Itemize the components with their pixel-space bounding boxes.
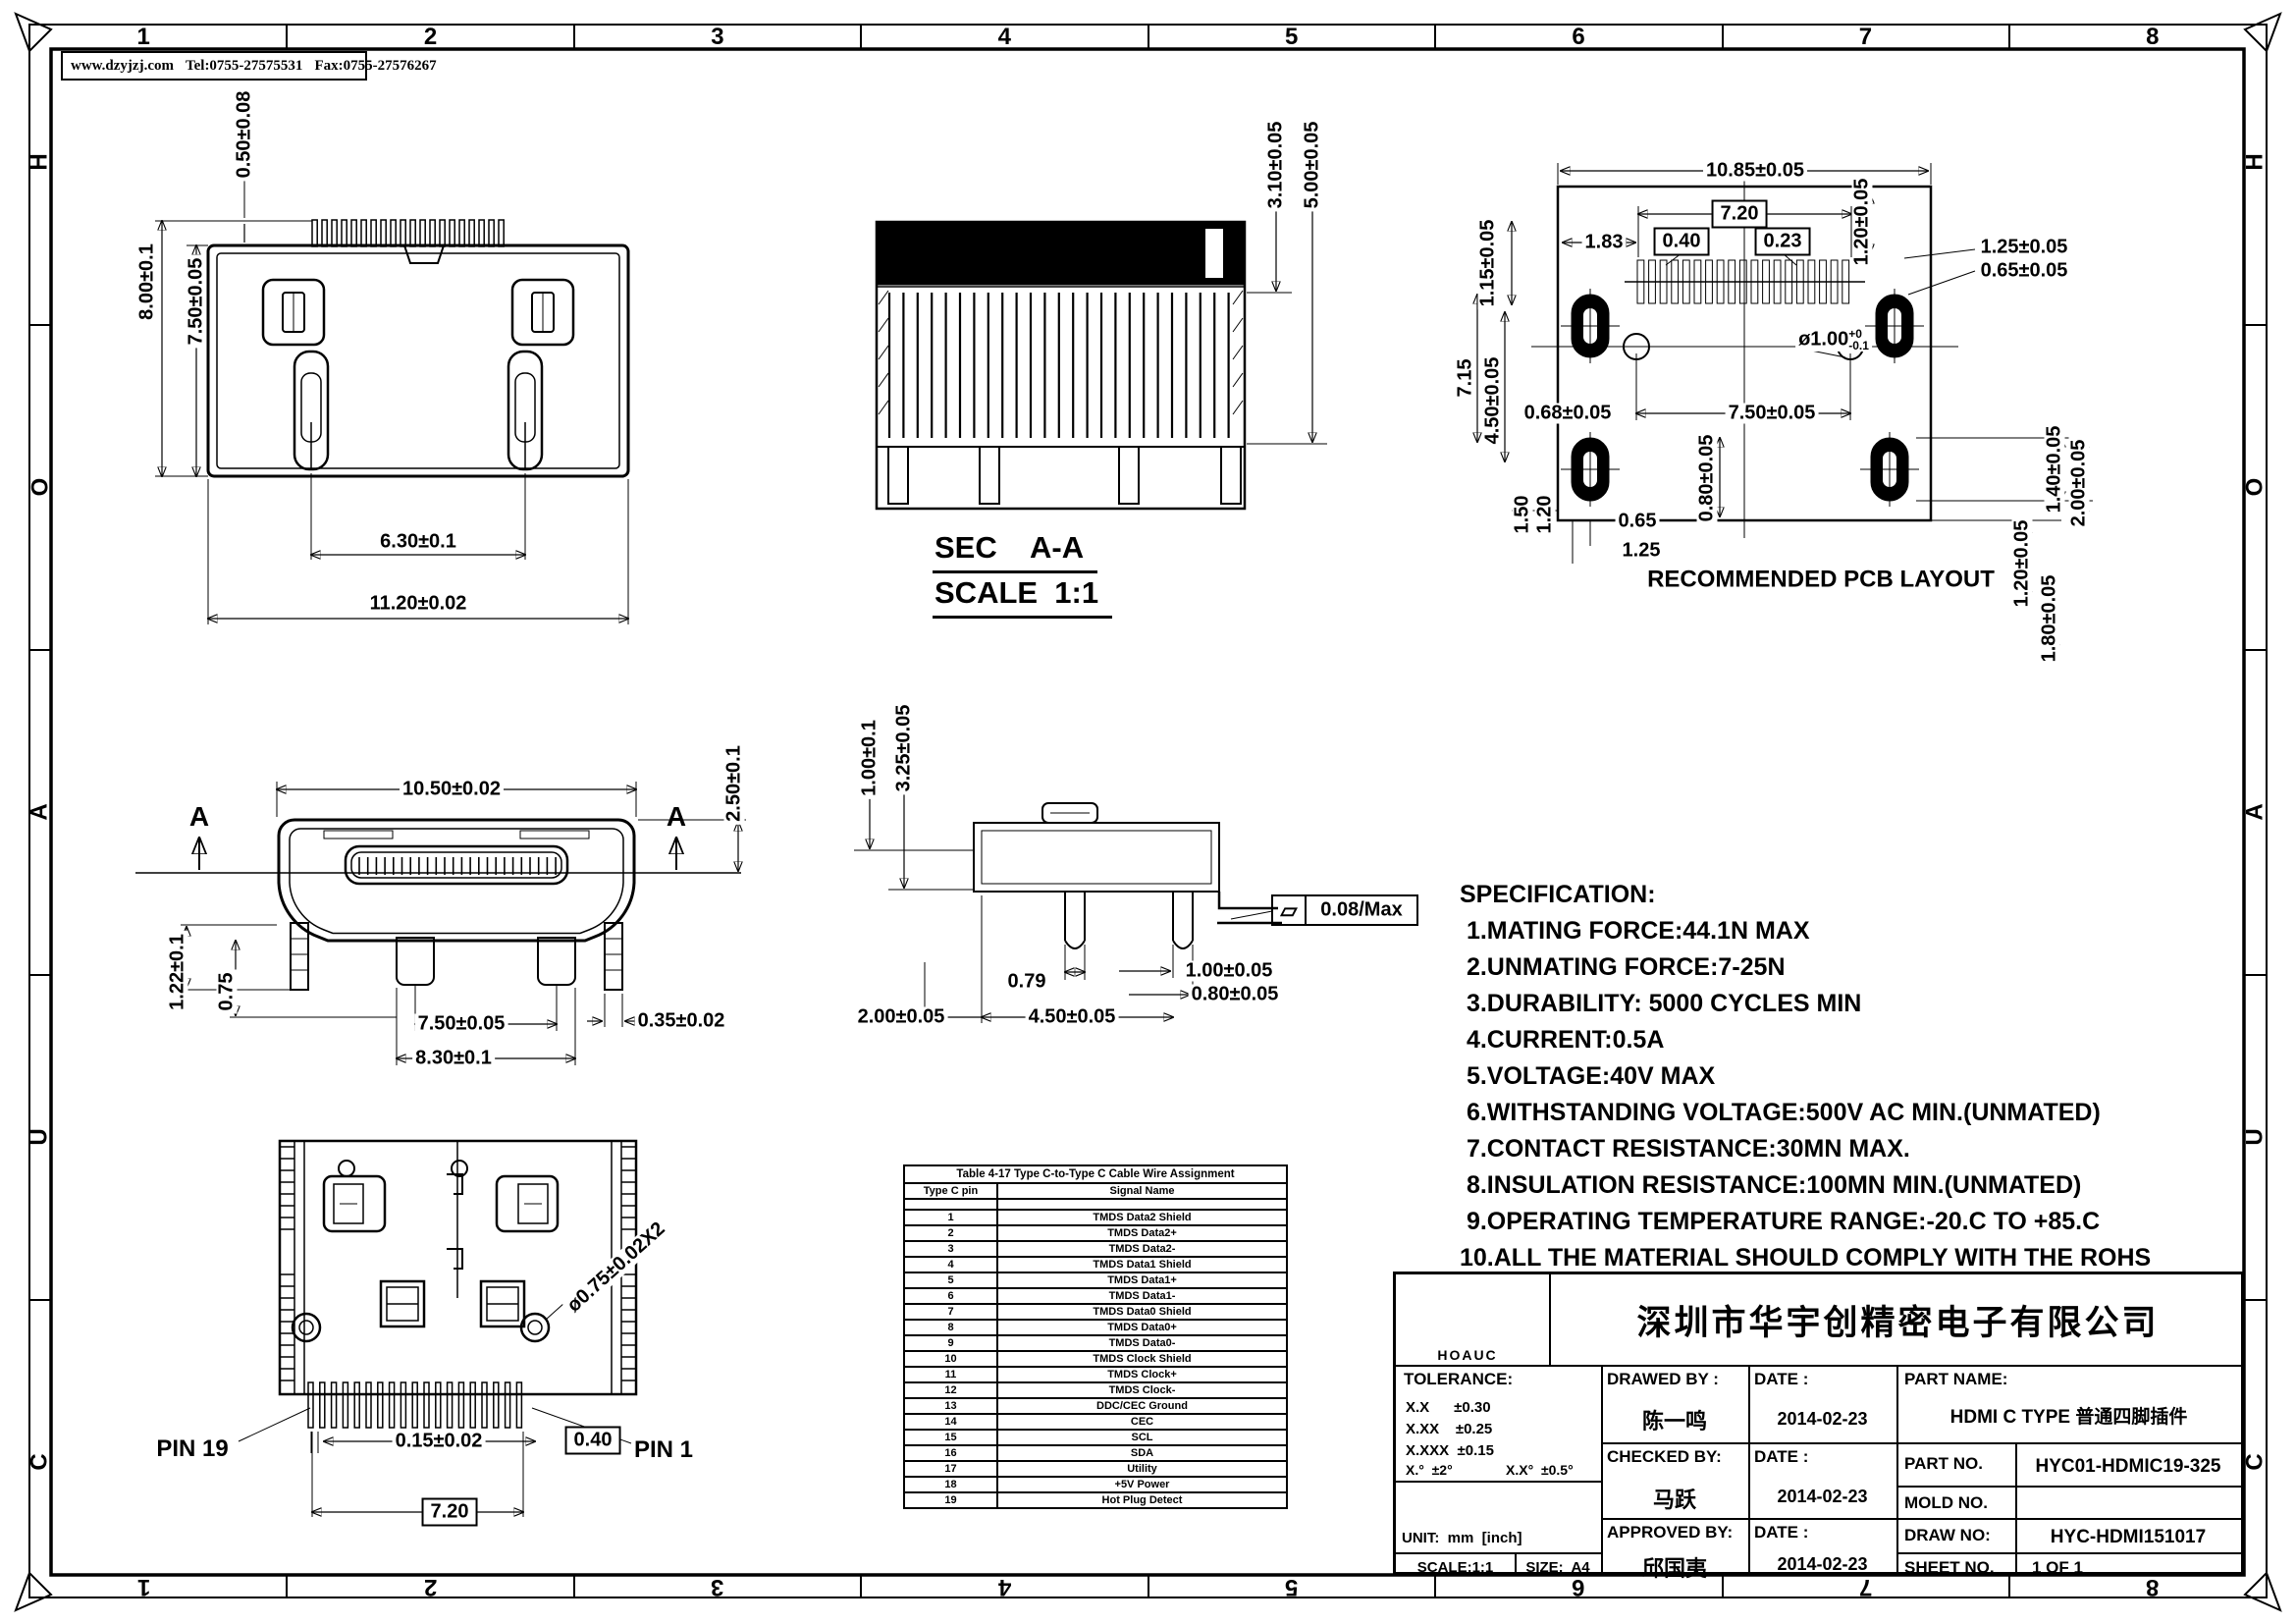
draw-no-label: DRAW NO: (1904, 1526, 1991, 1545)
dim-1.80: 1.80±0.05 (2040, 572, 2060, 666)
dim-8.30: 8.30±0.1 (412, 1049, 495, 1069)
dim-6.30: 6.30±0.1 (377, 532, 459, 553)
dim-0.40-bottom: 0.40 (565, 1427, 621, 1455)
spec-item: 8.INSULATION RESISTANCE:100MN MIN.(UNMAT… (1460, 1167, 2216, 1204)
spec-item: 5.VOLTAGE:40V MAX (1460, 1058, 2216, 1095)
col-header-pin: Type C pin (905, 1184, 998, 1198)
cell-pin: 13 (905, 1399, 998, 1413)
company-name: 深圳市华宇创精密电子有限公司 (1551, 1274, 2245, 1365)
cell-signal: SDA (998, 1446, 1286, 1460)
table-row: 18 +5V Power (905, 1478, 1286, 1493)
dim-0.68: 0.68±0.05 (1522, 404, 1615, 424)
dia-value: ø1.00 (1798, 328, 1848, 350)
part-no-value: HYC01-HDMIC19-325 (2015, 1456, 2241, 1478)
cell-pin: 9 (905, 1336, 998, 1350)
cell-signal: Hot Plug Detect (998, 1493, 1286, 1507)
table-row: 7 TMDS Data0 Shield (905, 1305, 1286, 1321)
dim-0.65-right: 0.65±0.05 (1978, 261, 2071, 282)
dim-0.80-side: 0.80±0.05 (1189, 985, 1282, 1005)
wire-assignment-table: Table 4-17 Type C-to-Type C Cable Wire A… (903, 1164, 1288, 1509)
zone-col-label: 6 (1435, 25, 1722, 49)
zone-col-label: 3 (574, 1575, 861, 1597)
zone-row-label: H (29, 0, 51, 325)
dim-10.50: 10.50±0.02 (400, 780, 504, 800)
zone-columns-bottom: 12345678 (0, 1575, 2296, 1597)
spec-item: 4.CURRENT:0.5A (1460, 1022, 2216, 1058)
dim-7.50-front: 7.50±0.05 (415, 1014, 508, 1035)
checked-by-value: 马跃 (1601, 1483, 1748, 1514)
dim-5.00: 5.00±0.05 (1303, 119, 1323, 212)
spec-item: 7.CONTACT RESISTANCE:30MN MAX. (1460, 1131, 2216, 1167)
dim-0.50: 0.50±0.08 (235, 88, 255, 182)
section-scale: SCALE 1:1 (933, 575, 1112, 619)
flatness-icon: ▱ (1278, 898, 1301, 921)
cell-signal: DDC/CEC Ground (998, 1399, 1286, 1413)
table-row: 6 TMDS Data1- (905, 1289, 1286, 1305)
zone-row-label: H (2244, 0, 2267, 325)
approved-by-value: 邱国夷 (1601, 1551, 1748, 1583)
table-row: 3 TMDS Data2- (905, 1242, 1286, 1258)
size-label: SIZE: A4 (1515, 1559, 1601, 1576)
website: www.dzyjzj.com (71, 58, 174, 75)
approved-date-value: 2014-02-23 (1748, 1554, 1896, 1575)
cell-signal: TMDS Data2+ (998, 1226, 1286, 1240)
checked-date-label: DATE : (1754, 1447, 1808, 1467)
zone-row-label: O (2244, 325, 2267, 650)
zone-row-label: U (29, 974, 51, 1299)
checked-date-value: 2014-02-23 (1748, 1487, 1896, 1507)
dim-1.00: 1.00±0.1 (860, 717, 881, 799)
pcb-caption: RECOMMENDED PCB LAYOUT (1644, 567, 1998, 591)
table-row: 15 SCL (905, 1431, 1286, 1446)
approved-by-label: APPROVED BY: (1607, 1523, 1733, 1543)
dim-4.50-side: 4.50±0.05 (1026, 1007, 1119, 1028)
drawed-date-label: DATE : (1754, 1370, 1808, 1389)
cell-signal: TMDS Clock Shield (998, 1352, 1286, 1366)
table-row: 19 Hot Plug Detect (905, 1493, 1286, 1507)
cell-pin: 16 (905, 1446, 998, 1460)
table-row: 11 TMDS Clock+ (905, 1368, 1286, 1383)
sheet-no-value: 1 OF 1 (2032, 1558, 2083, 1578)
cell-pin: 15 (905, 1431, 998, 1444)
drawed-date-value: 2014-02-23 (1748, 1409, 1896, 1430)
tolerance-r3: X.XXX ±0.15 (1406, 1442, 1494, 1459)
cell-signal: +5V Power (998, 1478, 1286, 1491)
pin1-label: PIN 1 (634, 1436, 693, 1464)
dim-7.15: 7.15 (1456, 356, 1476, 401)
tolerance-title: TOLERANCE: (1404, 1370, 1513, 1389)
tolerance-r1: X.X ±0.30 (1406, 1399, 1491, 1416)
cell-signal: TMDS Data0+ (998, 1321, 1286, 1334)
table-row: 16 SDA (905, 1446, 1286, 1462)
dim-8.00: 8.00±0.1 (137, 241, 158, 323)
cell-signal: TMDS Data0 Shield (998, 1305, 1286, 1319)
tolerance-angle1: X.° ±2° (1406, 1462, 1453, 1478)
dim-7.20-bottom: 7.20 (422, 1498, 478, 1527)
draw-no-value: HYC-HDMI151017 (2015, 1527, 2241, 1548)
table-row: 8 TMDS Data0+ (905, 1321, 1286, 1336)
col-header-signal: Signal Name (998, 1184, 1286, 1198)
cell-pin: 3 (905, 1242, 998, 1256)
pin19-label: PIN 19 (156, 1435, 228, 1463)
dim-2.00-side: 2.00±0.05 (855, 1007, 948, 1028)
dim-11.20: 11.20±0.02 (367, 594, 470, 615)
dim-1.20-top: 1.20±0.05 (1852, 176, 1873, 269)
dim-3.25: 3.25±0.05 (894, 702, 915, 795)
cell-pin: 8 (905, 1321, 998, 1334)
zone-row-label: U (2244, 974, 2267, 1299)
dim-4.50-pcb: 4.50±0.05 (1483, 354, 1504, 448)
dim-1.25-bottom: 1.25 (1620, 541, 1664, 562)
dim-1.22: 1.22±0.1 (168, 931, 188, 1013)
table-spacer (905, 1200, 1286, 1211)
zone-col-label: 4 (861, 25, 1148, 49)
fax: Fax:0755-27576267 (314, 58, 436, 75)
table-body: 1 TMDS Data2 Shield 2 TMDS Data2+ 3 TMDS… (905, 1211, 1286, 1507)
table-row: 10 TMDS Clock Shield (905, 1352, 1286, 1368)
checked-by-label: CHECKED BY: (1607, 1447, 1722, 1467)
spec-item: 2.UNMATING FORCE:7-25N (1460, 949, 2216, 986)
table-row: 14 CEC (905, 1415, 1286, 1431)
zone-row-label: C (29, 1299, 51, 1624)
dim-7.50-left: 7.50±0.05 (187, 255, 207, 349)
cell-signal: TMDS Clock+ (998, 1368, 1286, 1381)
dim-2.50: 2.50±0.1 (724, 742, 745, 825)
dim-1.83: 1.83 (1582, 233, 1627, 253)
view-sec-aa (877, 208, 1327, 509)
cell-pin: 18 (905, 1478, 998, 1491)
spec-item: 6.WITHSTANDING VOLTAGE:500V AC MIN.(UNMA… (1460, 1095, 2216, 1131)
dia-tolerance: +0-0.1 (1848, 328, 1869, 352)
dim-0.40-pcb: 0.40 (1654, 228, 1710, 256)
cell-pin: 14 (905, 1415, 998, 1429)
drawed-by-label: DRAWED BY : (1607, 1370, 1719, 1389)
dim-0.75: 0.75 (217, 970, 238, 1014)
phone: Tel:0755-27575531 (186, 58, 302, 75)
brand-logo-text: HOAUC (1404, 1347, 1531, 1363)
scale-label: SCALE:1:1 (1396, 1559, 1515, 1576)
sheet-no-label: SHEET NO. (1904, 1558, 1995, 1578)
dim-1.00b: 1.00±0.05 (1183, 961, 1276, 982)
table-header: Type C pin Signal Name (905, 1184, 1286, 1200)
part-no-label: PART NO. (1904, 1454, 1983, 1474)
cell-pin: 5 (905, 1273, 998, 1287)
dim-3.10: 3.10±0.05 (1266, 119, 1287, 212)
zone-rows-right: HOAUC (2244, 0, 2267, 1624)
cell-pin: 2 (905, 1226, 998, 1240)
cell-signal: TMDS Clock- (998, 1383, 1286, 1397)
table-row: 12 TMDS Clock- (905, 1383, 1286, 1399)
cell-signal: TMDS Data0- (998, 1336, 1286, 1350)
zone-row-label: A (2244, 650, 2267, 975)
dim-2.00-right: 2.00±0.05 (2069, 437, 2090, 530)
dim-1.15: 1.15±0.05 (1478, 217, 1499, 310)
cell-pin: 6 (905, 1289, 998, 1303)
cell-pin: 7 (905, 1305, 998, 1319)
cell-pin: 10 (905, 1352, 998, 1366)
dim-7.50-pcb: 7.50±0.05 (1726, 404, 1819, 424)
tolerance-r2: X.XX ±0.25 (1406, 1421, 1492, 1437)
dim-7.20-pcb: 7.20 (1712, 200, 1768, 229)
dim-10.85: 10.85±0.05 (1703, 161, 1807, 182)
cell-signal: TMDS Data1 Shield (998, 1258, 1286, 1272)
cell-signal: TMDS Data2 Shield (998, 1211, 1286, 1224)
table-row: 13 DDC/CEC Ground (905, 1399, 1286, 1415)
unit-label: UNIT: mm [inch] (1402, 1530, 1522, 1546)
table-row: 4 TMDS Data1 Shield (905, 1258, 1286, 1273)
cell-signal: TMDS Data1- (998, 1289, 1286, 1303)
dim-0.80-pcb: 0.80±0.05 (1697, 432, 1718, 525)
pcb-oval-pads (1561, 289, 1924, 507)
tolerance-angle2: X.X° ±0.5° (1506, 1462, 1574, 1478)
zone-row-label: O (29, 325, 51, 650)
cell-pin: 4 (905, 1258, 998, 1272)
cell-pin: 11 (905, 1368, 998, 1381)
flatness-value: 0.08/Max (1317, 900, 1405, 921)
section-mark-a-right: A (667, 801, 686, 833)
cell-signal: CEC (998, 1415, 1286, 1429)
zone-col-label: 5 (1148, 1575, 1435, 1597)
drawed-by-value: 陈一鸣 (1601, 1404, 1748, 1435)
dim-0.15: 0.15±0.02 (393, 1432, 486, 1452)
dim-1.25-right: 1.25±0.05 (1978, 238, 2071, 258)
zone-rows-left: HOAUC (29, 0, 51, 1624)
section-title: SEC A-A (933, 530, 1097, 573)
spec-item: 1.MATING FORCE:44.1N MAX (1460, 913, 2216, 949)
zone-col-label: 7 (1722, 25, 2008, 49)
zone-row-label: A (29, 650, 51, 975)
part-name-label: PART NAME: (1904, 1370, 2007, 1389)
dim-1.20-left: 1.20 (1535, 493, 1556, 537)
mold-no-label: MOLD NO. (1904, 1493, 1988, 1513)
dim-1.50: 1.50 (1513, 493, 1533, 537)
dim-0.35: 0.35±0.02 (635, 1011, 728, 1032)
zone-col-label: 3 (574, 25, 861, 49)
cell-pin: 1 (905, 1211, 998, 1224)
zone-col-label: 2 (287, 25, 573, 49)
title-block: HOAUC 深圳市华宇创精密电子有限公司 TOLERANCE: X.X ±0.3… (1393, 1272, 2244, 1575)
cell-pin: 17 (905, 1462, 998, 1476)
dim-1.20-bottom-right: 1.20±0.05 (2012, 517, 2033, 611)
specification-block: SPECIFICATION: 1.MATING FORCE:44.1N MAX … (1460, 877, 2216, 1313)
dim-hole-diameter: ø1.00+0-0.1 (1795, 328, 1872, 352)
section-mark-a-left: A (189, 801, 209, 833)
cell-signal: TMDS Data2- (998, 1242, 1286, 1256)
cell-pin: 12 (905, 1383, 998, 1397)
part-name-value: HDMI C TYPE 普通四脚插件 (1896, 1402, 2241, 1429)
view-bottom (239, 1141, 636, 1517)
cell-pin: 19 (905, 1493, 998, 1507)
zone-row-label: C (2244, 1299, 2267, 1624)
spec-title: SPECIFICATION: (1460, 877, 2216, 913)
zone-columns-top: 12345678 (0, 25, 2296, 49)
zone-col-label: 5 (1148, 25, 1435, 49)
cell-signal: Utility (998, 1462, 1286, 1476)
table-row: 2 TMDS Data2+ (905, 1226, 1286, 1242)
view-top (155, 165, 628, 624)
spec-item: 9.OPERATING TEMPERATURE RANGE:-20.C TO +… (1460, 1204, 2216, 1240)
dim-0.23: 0.23 (1755, 228, 1811, 256)
approved-date-label: DATE : (1754, 1523, 1808, 1543)
zone-col-label: 7 (1722, 1575, 2008, 1597)
table-title: Table 4-17 Type C-to-Type C Cable Wire A… (905, 1166, 1286, 1184)
cell-signal: TMDS Data1+ (998, 1273, 1286, 1287)
zone-col-label: 4 (861, 1575, 1148, 1597)
spec-item: 3.DURABILITY: 5000 CYCLES MIN (1460, 986, 2216, 1022)
spec-items: 1.MATING FORCE:44.1N MAX 2.UNMATING FORC… (1460, 913, 2216, 1313)
table-row: 5 TMDS Data1+ (905, 1273, 1286, 1289)
dim-0.79: 0.79 (1005, 972, 1049, 993)
table-row: 17 Utility (905, 1462, 1286, 1478)
dim-0.65-bottom: 0.65 (1616, 512, 1660, 532)
cell-signal: SCL (998, 1431, 1286, 1444)
zone-col-label: 2 (287, 1575, 573, 1597)
header-contact-box: www.dzyjzj.com Tel:0755-27575531 Fax:075… (61, 51, 367, 81)
table-row: 9 TMDS Data0- (905, 1336, 1286, 1352)
dim-1.40: 1.40±0.05 (2045, 423, 2065, 516)
table-row: 1 TMDS Data2 Shield (905, 1211, 1286, 1226)
